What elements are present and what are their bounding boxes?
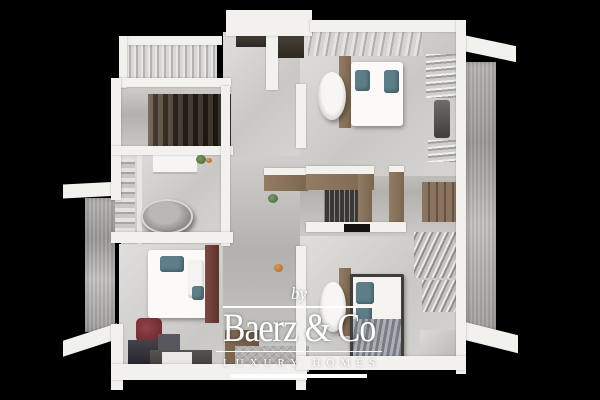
wardrobe xyxy=(358,174,372,224)
pillow xyxy=(355,70,370,91)
luggage xyxy=(158,334,180,350)
plant-icon xyxy=(268,194,278,203)
wall xyxy=(296,84,306,148)
window-curtain-bay xyxy=(127,44,217,78)
wall xyxy=(111,232,233,243)
orange-stool xyxy=(274,264,283,272)
wall xyxy=(111,78,231,87)
wall xyxy=(221,86,230,246)
wall xyxy=(456,20,466,374)
ledge-right-top xyxy=(458,34,516,62)
staircase xyxy=(148,94,231,152)
pillow xyxy=(160,256,184,272)
doorway-shadow xyxy=(344,224,370,232)
exterior-wall-left xyxy=(85,198,115,332)
wall xyxy=(111,78,121,200)
wall xyxy=(111,146,233,155)
pillow xyxy=(384,70,399,93)
balcony-wall-right xyxy=(466,62,496,332)
closet-top-cap xyxy=(264,168,308,175)
closet-top-cap xyxy=(306,166,374,174)
bathroom-divider xyxy=(137,154,142,244)
curtains-top xyxy=(308,32,422,56)
watermark-prefix: by xyxy=(204,284,394,304)
orange-decor xyxy=(206,158,212,163)
hanging-clothes xyxy=(426,54,458,98)
throw-blanket xyxy=(192,286,204,300)
wardrobe-slatted xyxy=(422,182,458,222)
corner-bench xyxy=(420,330,458,358)
watermark-brand: Baerz & Co xyxy=(204,306,394,351)
wall xyxy=(266,32,278,90)
watermark-bar xyxy=(231,374,367,378)
bedside-bathtub xyxy=(318,72,346,120)
watermark: by Baerz & Co LUXURY HOMES xyxy=(204,284,394,378)
watermark-rule xyxy=(216,351,382,353)
plant-icon xyxy=(196,155,206,164)
wall xyxy=(226,10,312,36)
lounge-chair xyxy=(434,100,450,138)
floor-plan-render: by Baerz & Co LUXURY HOMES xyxy=(0,0,600,400)
hanging-clothes xyxy=(324,190,358,222)
wall xyxy=(126,36,222,45)
wardrobe xyxy=(264,175,308,191)
hanging-clothes xyxy=(422,280,458,312)
bathroom-bathtub xyxy=(141,199,193,234)
wall xyxy=(310,20,462,32)
vanity-sink xyxy=(153,155,197,174)
hanging-clothes xyxy=(414,232,458,278)
wall xyxy=(111,324,123,390)
watermark-tagline: LUXURY HOMES xyxy=(204,357,394,370)
